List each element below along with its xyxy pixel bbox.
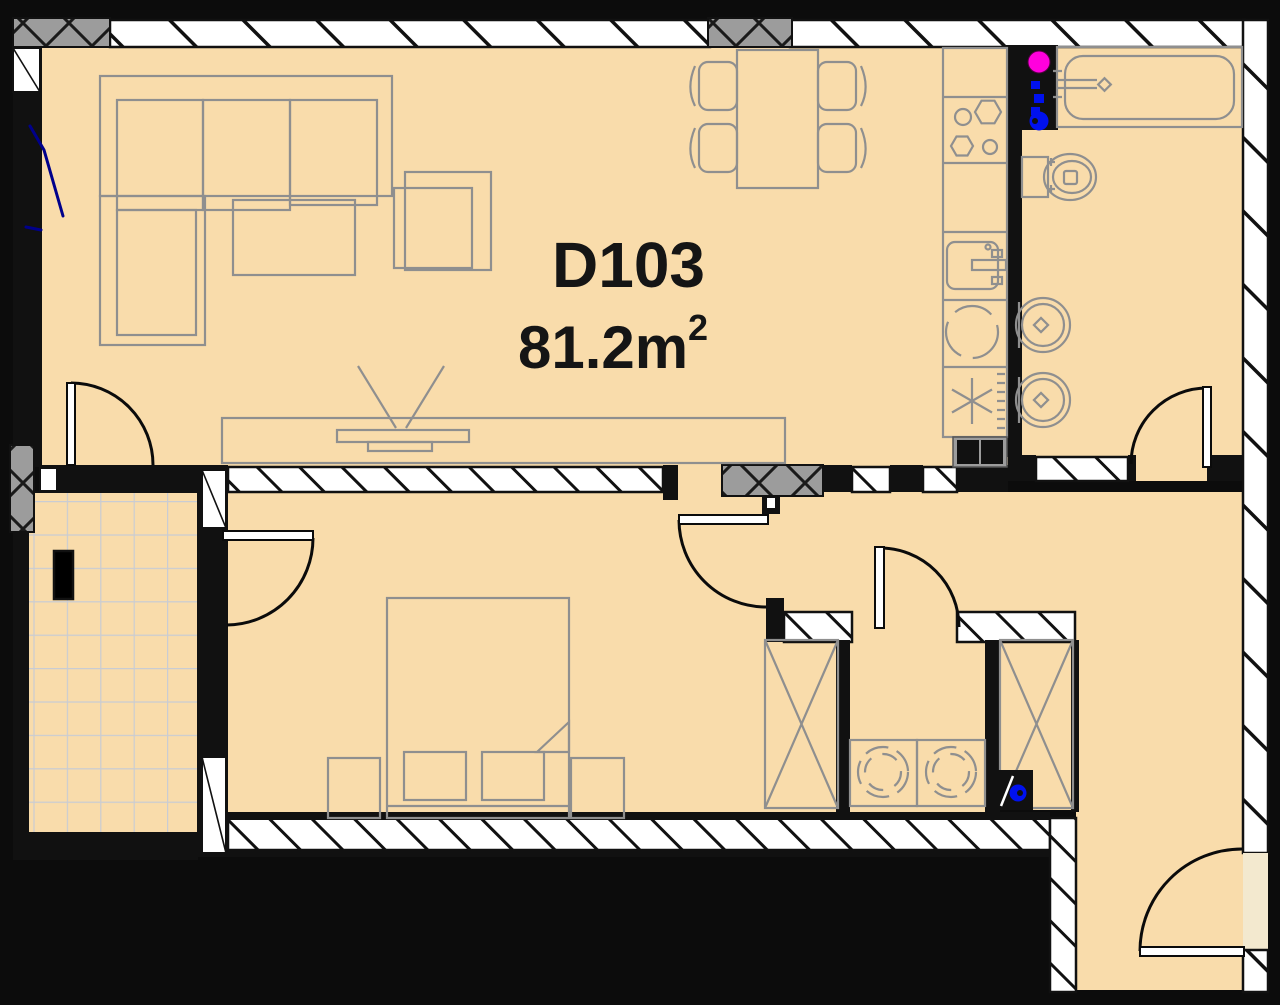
wall-bath-bottom-a: [1008, 455, 1036, 481]
floor-plan-canvas: D103 81.2m 2: [0, 0, 1280, 1005]
wall-bath-bottom-b: [1207, 455, 1243, 481]
wall-balcony-west: [13, 530, 28, 860]
balcony-planter: [54, 551, 73, 599]
wall-balcony-south: [13, 832, 198, 860]
column-stub-notch: [766, 497, 776, 509]
wall-niche-left-top: [784, 612, 852, 642]
bedroom-floor: [228, 492, 852, 818]
wall-left-exterior: [13, 45, 42, 467]
wall-jamb-stub: [663, 465, 678, 500]
balcony-door-jamb: [40, 468, 57, 491]
wall-right-upper: [1243, 20, 1268, 853]
unit-area-superscript: 2: [688, 307, 708, 348]
riser-blue-icon: [1031, 81, 1040, 89]
wall-hall-seg-c: [957, 465, 1008, 492]
column-top-middle: [708, 18, 792, 47]
entry-door-opening: [1243, 853, 1268, 950]
wall-top-right: [790, 20, 1245, 47]
electric-panel: [953, 437, 1007, 467]
water-heater-box: [997, 770, 1033, 810]
wall-corridor-left: [1050, 818, 1076, 992]
living-room-floor: [42, 45, 1008, 470]
column-top-left: [13, 18, 110, 47]
drain-dot: [1032, 118, 1038, 124]
unit-id-label: D103: [552, 229, 705, 301]
wall-balcony-threshold: [42, 465, 160, 492]
wall-bedroom-bottom-edge-low: [228, 849, 1050, 857]
hallway-passage-opening: [678, 465, 722, 494]
riser-blue-icon: [1034, 94, 1044, 103]
wall-livingroom-bedroom: [228, 467, 663, 492]
vent-grille: [997, 374, 1005, 428]
wall-right-lower: [1243, 950, 1268, 992]
riser-magenta-icon: [1028, 51, 1050, 73]
wall-livingroom-hall-a: [852, 467, 890, 492]
wall-niche-right-top: [957, 612, 1075, 642]
column-balcony: [10, 445, 34, 532]
wall-top-left: [110, 20, 710, 47]
balcony-tiled-floor: [28, 492, 198, 834]
wall-bedroom-bottom: [228, 818, 1050, 850]
corridor-floor: [1076, 614, 1243, 990]
unit-area-label: 81.2m: [518, 314, 688, 381]
wall-bathroom-hall: [1036, 457, 1128, 481]
wall-niche-stub: [766, 598, 784, 642]
bathroom-door-opening: [1133, 457, 1207, 481]
wall-livingroom-hall-b: [923, 467, 957, 492]
floor-plan: D103 81.2m 2: [0, 0, 1280, 1005]
heater-dot: [1017, 790, 1023, 796]
wall-hall-seg-b: [890, 465, 923, 492]
wall-hall-seg-a: [823, 465, 852, 492]
column-mid: [722, 465, 823, 496]
